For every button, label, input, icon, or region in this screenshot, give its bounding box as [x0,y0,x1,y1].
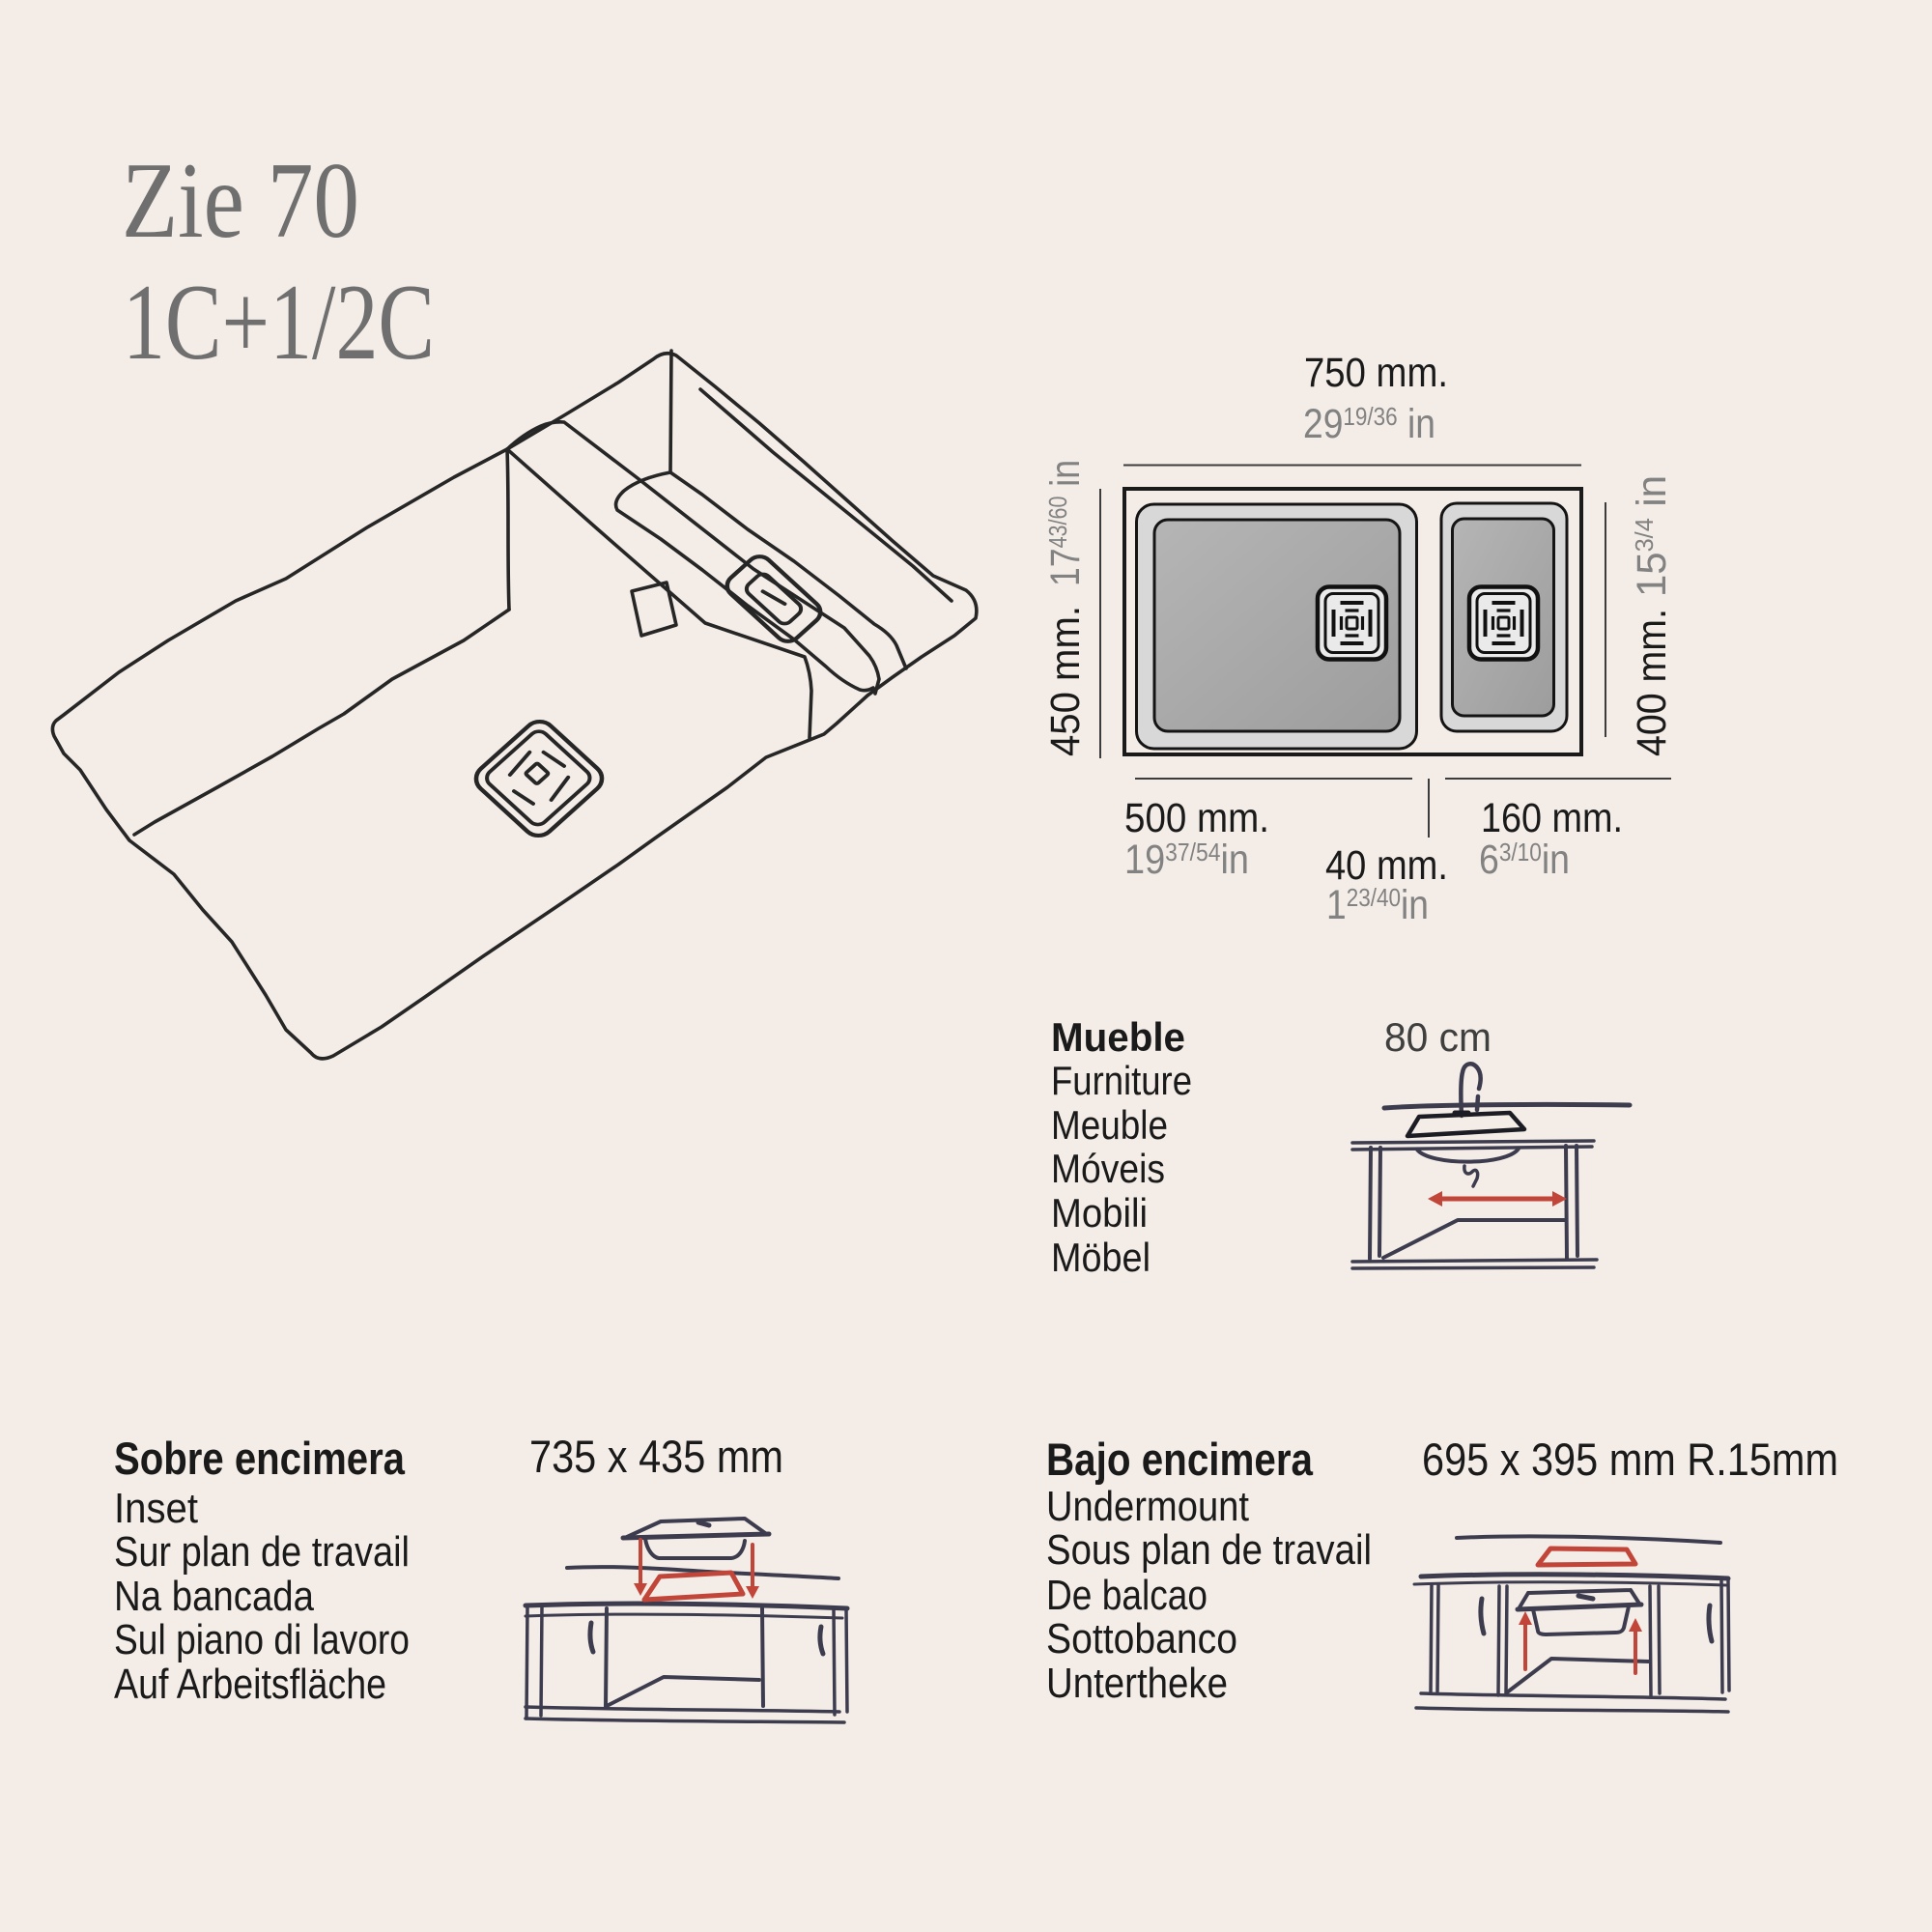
svg-text:450 mm.: 450 mm. [1042,606,1089,756]
svg-text:500 mm.: 500 mm. [1124,795,1269,841]
svg-text:Auf Arbeitsfläche: Auf Arbeitsfläche [114,1661,386,1708]
svg-text:Sous plan de travail: Sous plan de travail [1046,1526,1372,1574]
svg-text:De balcao: De balcao [1046,1572,1207,1619]
svg-text:Möbel: Möbel [1051,1235,1151,1280]
svg-text:Na bancada: Na bancada [114,1573,314,1620]
svg-text:Meuble: Meuble [1051,1102,1168,1148]
svg-text:Móveis: Móveis [1051,1146,1165,1191]
svg-text:750 mm.: 750 mm. [1304,350,1448,396]
svg-text:Bajo encimera: Bajo encimera [1046,1434,1314,1485]
svg-text:Mobili: Mobili [1051,1190,1148,1236]
svg-text:Sobre encimera: Sobre encimera [114,1433,406,1484]
svg-text:Untertheke: Untertheke [1046,1660,1228,1707]
svg-text:160 mm.: 160 mm. [1481,795,1623,841]
svg-text:Sul piano di lavoro: Sul piano di lavoro [114,1616,410,1663]
svg-text:Mueble: Mueble [1051,1014,1185,1060]
svg-text:Inset: Inset [114,1485,198,1532]
svg-text:Sottobanco: Sottobanco [1046,1615,1237,1662]
svg-text:Furniture: Furniture [1051,1058,1192,1103]
svg-text:Undermount: Undermount [1046,1483,1249,1530]
svg-text:Sur plan de travail: Sur plan de travail [114,1528,410,1576]
svg-text:735 x 435 mm: 735 x 435 mm [529,1431,783,1482]
svg-text:695 x 395 mm R.15mm: 695 x 395 mm R.15mm [1422,1434,1838,1485]
svg-text:1C+1/2C: 1C+1/2C [123,263,435,383]
svg-text:Zie 70: Zie 70 [122,141,359,261]
svg-text:80 cm: 80 cm [1384,1014,1492,1060]
svg-text:400 mm.: 400 mm. [1629,609,1675,756]
